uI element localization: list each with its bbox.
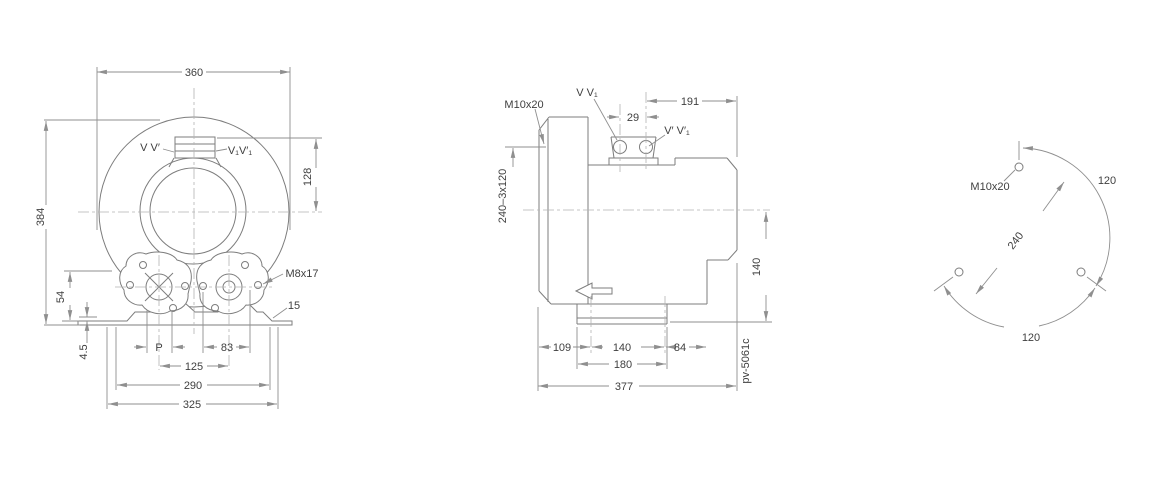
thread-callout-side-label: M10x20	[504, 99, 543, 111]
dim-overall-width: 360	[97, 67, 290, 230]
port-label-left-text: V V′	[140, 142, 160, 154]
angle-arc-upper	[1023, 148, 1110, 286]
bolt-circle-view: 120 120 240 M10x20	[934, 141, 1116, 344]
dim-base-width-label: 325	[183, 399, 201, 411]
port-label-right-text: V₁V′₁	[228, 145, 252, 157]
dim-angle-lower-label: 120	[1022, 332, 1040, 344]
dim-bolt-circle-note-label: 240–3x120	[497, 169, 509, 223]
dim-port-spacing-front-label: 125	[185, 361, 203, 373]
ports-label-top: V V₁	[576, 87, 617, 140]
dim-angle-upper-label: 120	[1098, 175, 1116, 187]
dim-face-to-hole: 109	[538, 307, 590, 391]
ports-label-side-text: V′ V′₁	[664, 125, 690, 137]
dim-foot-holes-label: 140	[613, 342, 631, 354]
dim-foot-height-label: 54	[55, 291, 67, 303]
dim-port-to-face: 191	[647, 96, 737, 157]
ports-label-top-text: V V₁	[576, 87, 598, 99]
dim-height-center-label: 140	[751, 258, 763, 276]
drawing-code: pv-5061c	[740, 338, 752, 384]
port-label-right: V₁V′₁	[216, 145, 252, 157]
dim-overall-width-label: 360	[185, 67, 203, 79]
right-port-flange	[197, 252, 269, 314]
dim-hole-to-face-label: 84	[674, 342, 686, 354]
dim-port-to-face-label: 191	[681, 96, 699, 108]
port-label-left: V V′	[140, 142, 174, 154]
dim-pitch-diameter: 240	[976, 182, 1064, 294]
slot-callout-label: 15	[288, 300, 300, 312]
dim-overall-height-label: 384	[35, 208, 47, 226]
dim-overall-length-label: 377	[615, 381, 633, 393]
technical-drawing-canvas: 360 384 128 54	[0, 0, 1160, 480]
dim-hole-offset-label: 83	[221, 342, 233, 354]
thread-callout-bolt-label: M10x20	[970, 181, 1009, 193]
inlet-bore	[150, 168, 236, 254]
slot-callout: 15	[273, 300, 300, 318]
dim-foot-holes: 140	[592, 342, 664, 354]
inlet-ring-outer	[140, 158, 246, 264]
silencer-box	[609, 137, 658, 165]
side-view: 29 191 M10x20 V V₁ V′ V′₁ 240–3x120	[497, 87, 772, 393]
dim-port-height-label: 128	[302, 168, 314, 186]
dim-port-size-label: P	[155, 342, 162, 354]
dim-foot-height: 54	[55, 271, 112, 321]
bolt-holes	[955, 163, 1085, 276]
dim-foot-length-label: 180	[614, 359, 632, 371]
dim-port-spacing-side-label: 29	[627, 112, 639, 124]
base-plate-profile	[78, 303, 292, 325]
dim-base-holes-label: 290	[184, 380, 202, 392]
thread-callout-bolt: M10x20	[970, 170, 1015, 193]
dim-port-spacing-side: 29	[607, 112, 659, 124]
side-outline	[539, 117, 737, 324]
front-view: 360 384 128 54	[35, 67, 322, 411]
dim-pitch-diameter-label: 240	[1006, 230, 1027, 252]
dim-plate-thickness-label: 4.5	[78, 344, 90, 359]
dim-base-holes: 290	[116, 327, 270, 392]
dim-face-to-hole-label: 109	[553, 342, 571, 354]
dim-hole-to-face: 84	[666, 342, 706, 354]
side-centerlines	[523, 92, 770, 354]
angle-arc-lower-right	[1039, 288, 1095, 326]
thread-callout-side: M10x20	[504, 99, 544, 144]
front-centerlines	[78, 88, 322, 370]
dim-plate-thickness: 4.5	[78, 302, 97, 360]
drawing-sheet: 360 384 128 54	[0, 0, 1160, 480]
flow-arrow	[576, 283, 612, 299]
angle-arc-lower-left	[944, 286, 1004, 327]
dim-height-center: 140	[670, 212, 772, 322]
thread-callout-front-label: M8x17	[285, 268, 318, 280]
dim-port-spacing-front: 125	[160, 361, 228, 373]
thread-callout-front: M8x17	[263, 268, 319, 284]
